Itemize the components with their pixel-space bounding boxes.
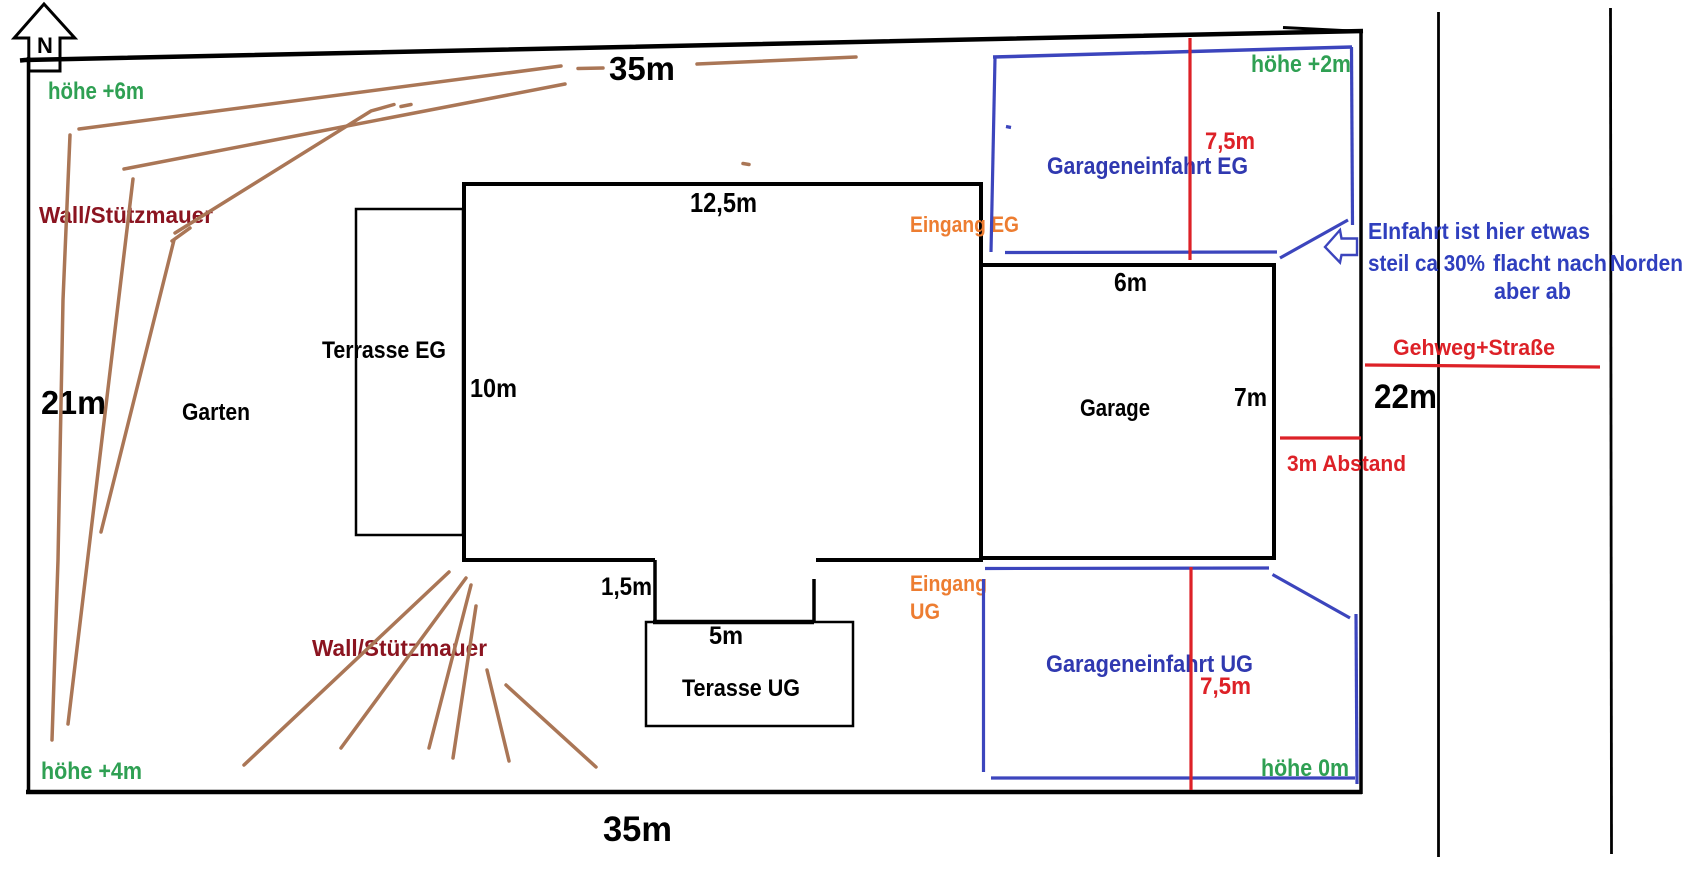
svg-text:Terasse UG: Terasse UG xyxy=(682,675,800,702)
svg-text:steil ca 30%: steil ca 30% xyxy=(1368,250,1485,276)
svg-text:7,5m: 7,5m xyxy=(1200,673,1251,700)
svg-text:35m: 35m xyxy=(609,50,675,87)
svg-text:6m: 6m xyxy=(1114,267,1147,297)
svg-text:höhe +4m: höhe +4m xyxy=(41,758,142,785)
svg-text:Terrasse EG: Terrasse EG xyxy=(322,337,446,364)
svg-text:Eingang EG: Eingang EG xyxy=(910,212,1019,237)
svg-text:Garten: Garten xyxy=(182,399,250,426)
svg-text:höhe +2m: höhe +2m xyxy=(1251,51,1351,78)
svg-text:7,5m: 7,5m xyxy=(1205,128,1255,155)
svg-text:21m: 21m xyxy=(41,384,106,421)
svg-text:35m: 35m xyxy=(603,810,672,849)
svg-text:5m: 5m xyxy=(709,622,743,650)
svg-text:Wall/Stützmauer: Wall/Stützmauer xyxy=(312,635,487,661)
svg-text:Garage: Garage xyxy=(1080,395,1150,422)
svg-text:1,5m: 1,5m xyxy=(601,573,652,601)
svg-text:flacht nach: flacht nach xyxy=(1493,250,1607,276)
svg-text:UG: UG xyxy=(910,599,940,624)
svg-text:EInfahrt ist hier etwas: EInfahrt ist hier etwas xyxy=(1368,218,1590,244)
svg-text:12,5m: 12,5m xyxy=(690,187,757,218)
svg-text:Eingang: Eingang xyxy=(910,571,987,596)
svg-text:3m Abstand: 3m Abstand xyxy=(1287,451,1406,476)
svg-text:Garageneinfahrt EG: Garageneinfahrt EG xyxy=(1047,153,1248,180)
svg-text:aber ab: aber ab xyxy=(1494,278,1571,304)
svg-text:höhe +6m: höhe +6m xyxy=(48,78,144,105)
svg-text:7m: 7m xyxy=(1234,382,1267,412)
svg-text:22m: 22m xyxy=(1374,378,1437,416)
svg-text:10m: 10m xyxy=(470,373,517,403)
svg-text:N: N xyxy=(37,33,53,58)
svg-text:Gehweg+Straße: Gehweg+Straße xyxy=(1393,335,1555,360)
svg-text:Norden: Norden xyxy=(1610,250,1683,276)
